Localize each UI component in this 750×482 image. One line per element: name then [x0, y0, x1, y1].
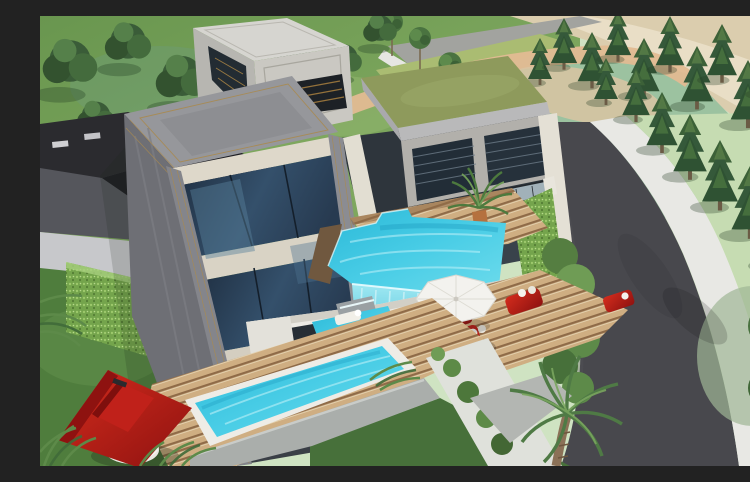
render-canvas: Aerial 3D architectural rendering of a m… — [40, 16, 750, 466]
villa-render: Aerial 3D architectural rendering of a m… — [40, 16, 750, 466]
